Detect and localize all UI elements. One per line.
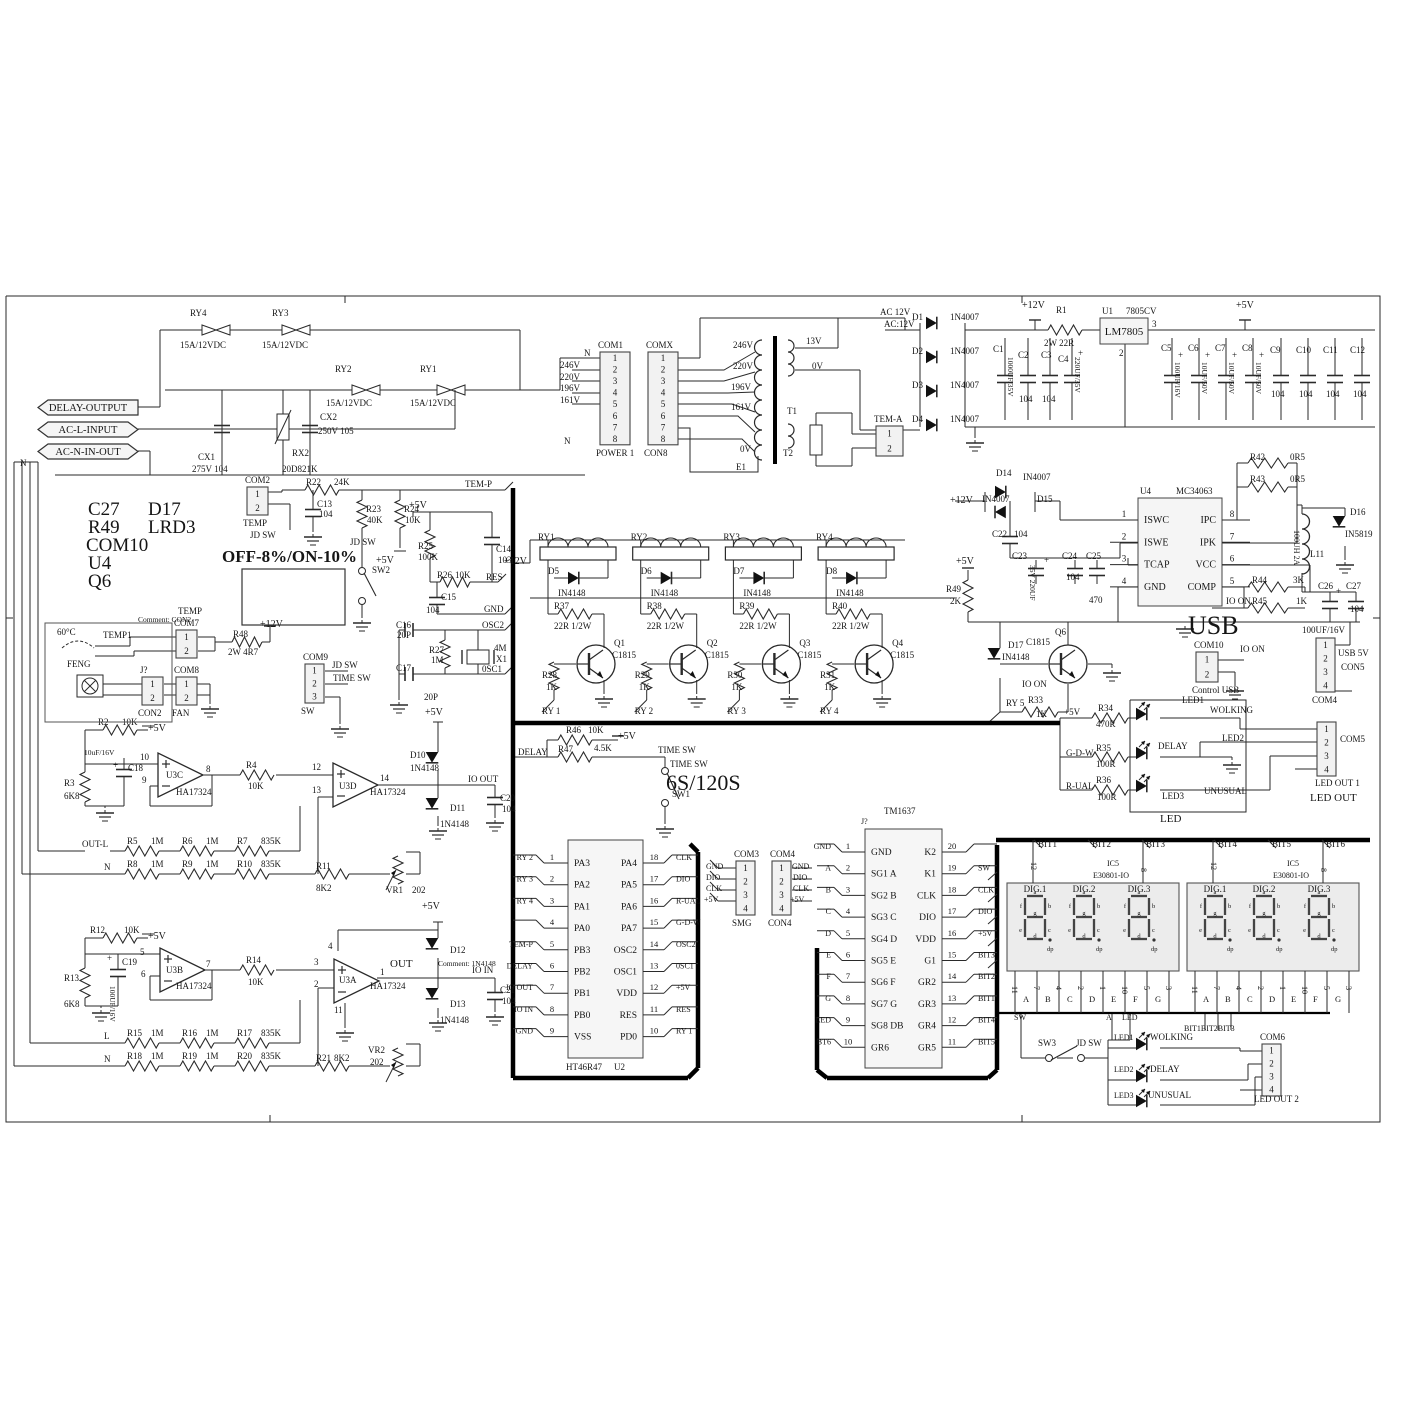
schematic-label: USB — [1188, 611, 1239, 640]
reference-text-block: C27 R49 COM10 U4 Q6 D17 LRD3 — [86, 499, 196, 592]
schematic-label: VDD — [616, 989, 637, 999]
schematic-label: + — [113, 760, 118, 770]
schematic-label: 5 — [140, 947, 145, 957]
schematic-label: G-D-W — [1066, 748, 1094, 758]
schematic-label: PA3 — [574, 859, 590, 869]
schematic-label: BIT4 — [978, 1016, 995, 1025]
emitter-arrow — [1069, 671, 1075, 678]
bus — [817, 1070, 827, 1078]
schematic-label: C4 — [1058, 354, 1069, 364]
schematic-label: IC5 — [1107, 859, 1119, 868]
schematic-label: 14 — [380, 773, 390, 783]
schematic-label: SG3 C — [871, 913, 897, 923]
schematic-label: OSC2 — [482, 620, 504, 630]
schematic-label: IO ON — [1240, 644, 1265, 654]
schematic-label: SG6 F — [871, 978, 896, 988]
schematic-label: BIT3 — [978, 951, 995, 960]
diode — [926, 351, 937, 364]
svg-text:COM1: COM1 — [598, 340, 623, 350]
schematic-label: 1000UF/35V — [1006, 357, 1015, 397]
schematic-label: 1N4007 — [950, 312, 979, 322]
schematic-label: R30 — [727, 670, 743, 680]
schematic-label: 104 — [1299, 389, 1313, 399]
schematic-label: RY 4 — [517, 896, 533, 905]
schematic-label: 22R 1/2W — [554, 621, 592, 631]
schematic-label: WOLKING — [1210, 705, 1253, 715]
wire — [966, 887, 974, 895]
schematic-label: R9 — [182, 859, 193, 869]
schematic-label: SW — [978, 864, 990, 873]
schematic-label: 104 — [502, 804, 516, 814]
schematic-label: OSC1 — [614, 968, 637, 978]
schematic-label: 24K — [334, 477, 350, 487]
wire — [834, 844, 842, 852]
schematic-label: 19 — [948, 863, 957, 873]
schematic-label: 4 — [1122, 576, 1127, 586]
wire — [664, 920, 672, 928]
schematic-label: GR4 — [918, 1022, 936, 1032]
schematic-label: 15A/12VDC — [410, 398, 456, 408]
schematic-label: 1K — [824, 682, 836, 692]
wire — [834, 953, 842, 961]
schematic-label: GND — [792, 862, 810, 871]
relay-contact — [451, 385, 465, 395]
schematic-label: 10K — [124, 925, 140, 935]
schematic-label: 6 — [141, 969, 146, 979]
schematic-label: PB2 — [574, 968, 591, 978]
schematic-label: TM1637 — [884, 806, 916, 816]
schematic-label: CLK — [706, 884, 722, 893]
schematic-label: 11 — [1010, 986, 1019, 994]
schematic-label: +5V — [422, 901, 441, 912]
schematic-label: C17 — [396, 663, 412, 673]
schematic-label: 2 — [314, 979, 319, 989]
schematic-label: Q6 — [1055, 627, 1066, 637]
wire — [1061, 650, 1075, 660]
connector-COM4R: 1234COM4 — [1312, 638, 1338, 705]
segment-dp — [1048, 938, 1051, 941]
schematic-label: R45 — [1252, 596, 1268, 606]
schematic-label: RY 3 — [727, 706, 746, 716]
svg-text:COM2: COM2 — [245, 475, 270, 485]
schematic-label: UNUSUAL — [1204, 786, 1247, 796]
schematic-label: VSS — [574, 1033, 591, 1043]
svg-text:1: 1 — [1323, 640, 1328, 650]
schematic-label: 2 — [1076, 986, 1085, 990]
wire — [664, 877, 672, 885]
schematic-label: 1 — [550, 852, 554, 862]
schematic-label: 1M — [206, 1028, 219, 1038]
schematic-label: R40 — [832, 601, 848, 611]
svg-text:1: 1 — [184, 632, 189, 642]
schematic-label: IN4148 — [743, 588, 771, 598]
svg-text:8: 8 — [613, 434, 618, 444]
schematic-label: dp — [1047, 946, 1054, 953]
connector-COM10: 12COM10Control USB — [1192, 640, 1239, 695]
schematic-label: E — [826, 951, 831, 960]
svg-text:4: 4 — [743, 903, 748, 913]
schematic-label: TIME SW — [670, 759, 708, 769]
svg-text:SMG: SMG — [732, 918, 752, 928]
schematic-label: c — [1277, 927, 1280, 934]
schematic-label: +5V — [956, 556, 975, 567]
svg-text:POWER 1: POWER 1 — [596, 448, 634, 458]
schematic-label: b — [1152, 903, 1155, 910]
schematic-label: WOLKING — [1150, 1032, 1193, 1042]
schematic-label: 1K — [1296, 596, 1308, 606]
schematic-label: dp — [1331, 946, 1338, 953]
svg-text:Q6: Q6 — [88, 571, 111, 592]
schematic-label: 4.5K — [594, 743, 612, 753]
schematic-label: 13 — [650, 961, 659, 971]
wire — [966, 1018, 974, 1026]
schematic-label: IO IN — [472, 965, 494, 975]
schematic-label: OSC2 — [614, 946, 637, 956]
schematic-label: R39 — [739, 601, 755, 611]
svg-text:COM4: COM4 — [770, 849, 796, 859]
schematic-label: SW2 — [372, 565, 390, 575]
schematic-label: A — [1023, 994, 1030, 1004]
schematic-label: 6K8 — [64, 791, 80, 801]
schematic-label: 1 — [1122, 509, 1127, 519]
schematic-label: 1K — [546, 682, 558, 692]
schematic-label: 6 — [1230, 554, 1235, 564]
svg-text:2: 2 — [887, 444, 892, 454]
schematic-label: BIT1 — [978, 994, 995, 1003]
schematic-label: 2 — [1122, 531, 1127, 541]
schematic-label: SG8 DB — [871, 1022, 903, 1032]
schematic-label: HA17324 — [370, 787, 406, 797]
schematic-label: R10 — [237, 859, 253, 869]
schematic-label: J? — [861, 817, 868, 826]
schematic-label: R48 — [233, 629, 249, 639]
schematic-label: 220V — [733, 361, 754, 371]
schematic-label: 60°C — [57, 627, 76, 637]
schematic-label: 202 — [370, 1057, 384, 1067]
schematic-label: 12 — [948, 1015, 957, 1025]
wire — [664, 1007, 672, 1015]
svg-text:3: 3 — [1269, 1072, 1274, 1082]
svg-text:COM4: COM4 — [1312, 695, 1338, 705]
schematic-label: +5V — [376, 555, 395, 566]
wire — [834, 974, 842, 982]
schematic-label: 7 — [1230, 531, 1235, 541]
schematic-label: 161V — [731, 402, 752, 412]
schematic-label: 11 — [1190, 986, 1199, 994]
connector-COM8: 12COM8FAN — [172, 665, 200, 718]
schematic-canvas: DELAY-OUTPUT AC-L-INPUT AC-N-IN-OUT C27 … — [0, 0, 1428, 1428]
schematic-label: LED OUT — [1310, 792, 1357, 804]
schematic-label: c — [1152, 927, 1155, 934]
emitter-arrow — [597, 671, 603, 678]
schematic-label: 10 — [844, 1036, 853, 1046]
schematic-label: PA4 — [621, 859, 637, 869]
schematic-label: 12 — [312, 762, 321, 772]
connector-COM5: 1234 — [1317, 722, 1336, 776]
net-flag-ac-n-in-out: AC-N-IN-OUT — [38, 444, 138, 459]
bus — [688, 1068, 698, 1078]
schematic-label: 22R 1/2W — [739, 621, 777, 631]
schematic-label: IPK — [1200, 537, 1217, 548]
schematic-label: RY1 — [538, 532, 555, 542]
schematic-label: + — [1178, 350, 1183, 360]
schematic-label: CX2 — [320, 412, 337, 422]
schematic-label: G1 — [924, 957, 936, 967]
schematic-label: IN4148 — [836, 588, 864, 598]
schematic-label: JD SW — [332, 660, 358, 670]
schematic-label: C8 — [1242, 343, 1253, 353]
schematic-label: R12 — [90, 925, 105, 935]
switch-pole — [1078, 1055, 1085, 1062]
schematic-label: 4 — [328, 941, 333, 951]
svg-text:1: 1 — [887, 429, 892, 439]
schematic-label: 100UH 2A — [1292, 530, 1301, 566]
schematic-label: 35V 220UF — [1028, 565, 1037, 601]
wire — [536, 964, 544, 972]
schematic-label: Q3 — [799, 638, 810, 648]
schematic-label: 2W 22R — [1044, 338, 1074, 348]
schematic-label: 246V — [733, 340, 754, 350]
schematic-label: 0V — [812, 361, 824, 371]
schematic-label: R31 — [820, 670, 835, 680]
schematic-label: R16 — [182, 1028, 198, 1038]
schematic-label: U3A — [339, 975, 357, 985]
schematic-label: R15 — [127, 1028, 143, 1038]
schematic-label: e — [1123, 927, 1126, 934]
schematic-label: R33 — [1028, 695, 1044, 705]
schematic-label: +5V — [425, 707, 444, 718]
diode — [1333, 516, 1346, 527]
schematic-label: SG2 B — [871, 891, 897, 901]
segment-dp — [1097, 938, 1100, 941]
svg-text:3: 3 — [1323, 667, 1328, 677]
schematic-label: RY3 — [723, 532, 740, 542]
schematic-label: 6 — [550, 961, 554, 971]
wire — [966, 974, 974, 982]
schematic-label: D6 — [641, 566, 652, 576]
schematic-label: + — [1044, 555, 1049, 565]
svg-text:2: 2 — [743, 876, 748, 886]
resistor — [125, 869, 159, 879]
schematic-label: 4 — [1234, 986, 1243, 990]
svg-text:2: 2 — [779, 876, 784, 886]
schematic-label: 104 — [1271, 389, 1285, 399]
thermostat-icon — [62, 641, 94, 648]
schematic-label: 1N4148 — [410, 763, 439, 773]
schematic-label: 10K — [248, 977, 264, 987]
schematic-label: T2 — [783, 448, 793, 458]
schematic-label: VR1 — [386, 885, 403, 895]
connector-COM7: 12COM7 — [174, 618, 200, 658]
schematic-label: 0R5 — [1290, 452, 1306, 462]
schematic-label: E1 — [736, 462, 746, 472]
schematic-label: C12 — [1350, 345, 1365, 355]
schematic-label: CLK — [793, 884, 809, 893]
schematic-label: 8K2 — [334, 1053, 350, 1063]
svg-text:COM9: COM9 — [303, 652, 329, 662]
svg-text:2: 2 — [255, 503, 260, 513]
schematic-label: b — [1332, 903, 1335, 910]
wire — [682, 650, 696, 660]
relay-coil — [633, 547, 709, 560]
net-flag-delay-output: DELAY-OUTPUT — [38, 400, 138, 415]
schematic-label: RY2 — [631, 532, 648, 542]
schematic-label: AC:12V — [884, 319, 915, 329]
schematic-label: 220UF/35V — [1073, 357, 1082, 393]
diode — [995, 506, 1006, 519]
schematic-label: F — [827, 972, 832, 981]
resistor — [125, 1061, 159, 1071]
schematic-label: 9 — [142, 775, 147, 785]
schematic-label: dp — [1227, 946, 1234, 953]
schematic-label: 3 — [1164, 986, 1173, 990]
relay-contact — [437, 385, 451, 395]
svg-text:4: 4 — [613, 388, 618, 398]
schematic-label: C1 — [993, 344, 1004, 354]
diode — [926, 385, 937, 398]
schematic-label: 4 — [1054, 986, 1063, 990]
schematic-label: C2 — [1018, 350, 1029, 360]
schematic-label: D — [1269, 994, 1275, 1004]
schematic-label: CX1 — [198, 452, 215, 462]
schematic-label: 2W 4R7 — [228, 647, 259, 657]
schematic-label: N — [104, 862, 111, 872]
schematic-label: DIO — [978, 907, 992, 916]
schematic-label: 835K — [261, 1051, 282, 1061]
schematic-label: dp — [1276, 946, 1283, 953]
schematic-label: RY 2 — [635, 706, 653, 716]
schematic-label: +5V — [1236, 300, 1255, 311]
schematic-label: GND — [1144, 582, 1166, 593]
wire — [536, 920, 544, 928]
schematic-label: OUT — [390, 958, 413, 970]
schematic-label: 202 — [412, 885, 426, 895]
wire — [678, 392, 755, 393]
wire — [966, 953, 974, 961]
svg-text:2: 2 — [184, 646, 189, 656]
schematic-label: 1M — [151, 836, 164, 846]
schematic-label: 1N4007 — [950, 346, 979, 356]
schematic-label: +12V — [950, 495, 974, 506]
schematic-label: FENG — [67, 659, 91, 669]
schematic-label: RY1 — [420, 364, 437, 374]
schematic-label: 11 — [650, 1004, 658, 1014]
schematic-label: 7805CV — [1126, 306, 1157, 316]
schematic-label: C6 — [1188, 343, 1199, 353]
schematic-label: 7 — [1032, 986, 1041, 990]
schematic-label: +5V — [148, 723, 167, 734]
schematic-label: 10UF/50V — [1200, 362, 1209, 395]
wire — [536, 898, 544, 906]
led-icon — [1136, 1095, 1147, 1108]
schematic-label: 1K — [1036, 709, 1048, 719]
svg-text:COM3: COM3 — [734, 849, 760, 859]
schematic-label: D — [1089, 994, 1095, 1004]
schematic-label: LED — [1122, 1013, 1138, 1022]
schematic-label: D7 — [733, 566, 744, 576]
schematic-label: 104 — [1014, 529, 1028, 539]
schematic-label: IO ON — [1022, 679, 1047, 689]
schematic-label: b — [1277, 903, 1280, 910]
schematic-label: 18 — [948, 884, 957, 894]
schematic-label: DIO — [793, 873, 807, 882]
schematic-label: c — [1332, 927, 1335, 934]
schematic-label: N — [584, 348, 591, 358]
schematic-label: 104 — [1350, 604, 1364, 614]
schematic-label: + — [1336, 586, 1341, 596]
diode — [926, 419, 937, 432]
transformer-secondary — [788, 340, 794, 448]
schematic-label: 15A/12VDC — [180, 340, 226, 350]
schematic-label: L — [104, 1031, 110, 1041]
schematic-label: R21 — [316, 1053, 331, 1063]
schematic-label: 250V 105 — [318, 426, 354, 436]
svg-text:2: 2 — [312, 679, 317, 689]
schematic-label: TEMP — [178, 606, 202, 616]
schematic-label: +5V — [704, 895, 719, 904]
schematic-label: 1M — [206, 1051, 219, 1061]
schematic-label: 470R — [1096, 719, 1116, 729]
svg-text:LRD3: LRD3 — [148, 517, 196, 538]
schematic-label: HA17324 — [176, 981, 212, 991]
schematic-label: A — [825, 864, 831, 873]
connector-COM3: 1234COM3SMG — [732, 849, 760, 928]
svg-text:2: 2 — [1324, 737, 1329, 747]
schematic-label: DELAY — [1150, 1064, 1180, 1074]
schematic-label: E — [1111, 994, 1116, 1004]
schematic-label: 161V — [560, 395, 581, 405]
schematic-label: 9 — [550, 1026, 554, 1036]
schematic-label: 7 — [846, 971, 850, 981]
switch-blade — [364, 573, 376, 596]
schematic-label: 11 — [334, 1005, 343, 1015]
wire — [664, 942, 672, 950]
schematic-label: R25 — [418, 541, 434, 551]
schematic-label: SW — [1014, 1013, 1026, 1022]
schematic-label: 8 — [206, 764, 211, 774]
schematic-label: 104 — [1353, 389, 1367, 399]
schematic-label: D17 — [1008, 640, 1024, 650]
diode — [753, 572, 764, 585]
svg-text:2: 2 — [1269, 1059, 1274, 1069]
schematic-label: 3K — [1293, 575, 1305, 585]
schematic-label: F — [1133, 994, 1138, 1004]
schematic-label: IN4148 — [558, 588, 586, 598]
schematic-label: IO ON — [1226, 596, 1251, 606]
diode — [426, 938, 439, 949]
schematic-label: CON5 — [1341, 662, 1365, 672]
schematic-label: R19 — [182, 1051, 198, 1061]
schematic-label: 103 — [498, 555, 512, 565]
schematic-label: D — [825, 929, 831, 938]
schematic-label: 10UF/50V — [1227, 362, 1236, 395]
schematic-label: 1M — [431, 655, 444, 665]
schematic-label: 4 — [846, 906, 851, 916]
schematic-label: RY 1 — [542, 706, 560, 716]
schematic-label: 2 — [550, 874, 554, 884]
svg-text:1: 1 — [779, 863, 784, 873]
schematic-label: D5 — [548, 566, 559, 576]
schematic-label: C23 — [1012, 551, 1028, 561]
svg-text:FAN: FAN — [172, 708, 190, 718]
svg-text:1: 1 — [743, 863, 748, 873]
schematic-label: MC34063 — [1176, 486, 1213, 496]
schematic-label: DELAY — [518, 747, 548, 757]
diode — [661, 572, 672, 585]
relay-coil — [725, 547, 801, 560]
schematic-label: HT46R47 — [566, 1062, 603, 1072]
wire — [536, 877, 544, 885]
